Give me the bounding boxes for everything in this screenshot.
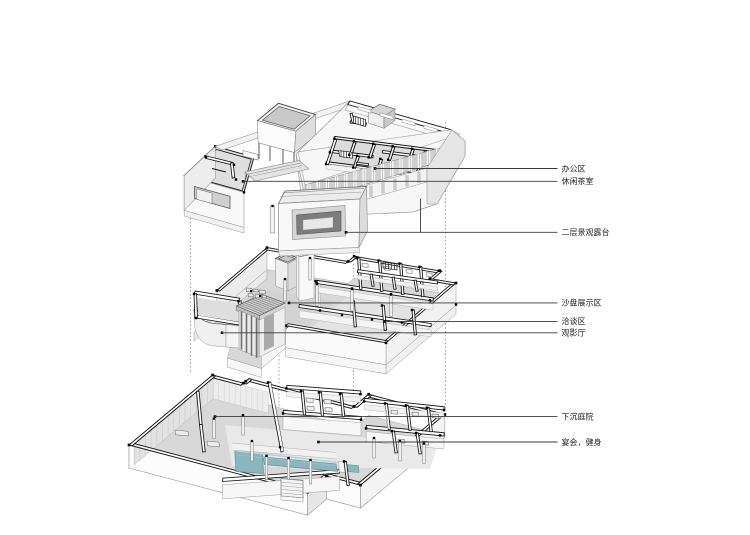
svg-text:办公区: 办公区 [562,163,586,173]
svg-text:下沉庭院: 下沉庭院 [562,411,594,421]
svg-text:沙盘展示区: 沙盘展示区 [562,298,602,308]
svg-text:休闲茶室: 休闲茶室 [562,176,594,186]
svg-text:二层景观露台: 二层景观露台 [562,227,610,237]
svg-text:洽谈区: 洽谈区 [562,316,586,326]
svg-text:观影厅: 观影厅 [562,328,586,338]
svg-text:宴会，健身: 宴会，健身 [562,437,602,447]
